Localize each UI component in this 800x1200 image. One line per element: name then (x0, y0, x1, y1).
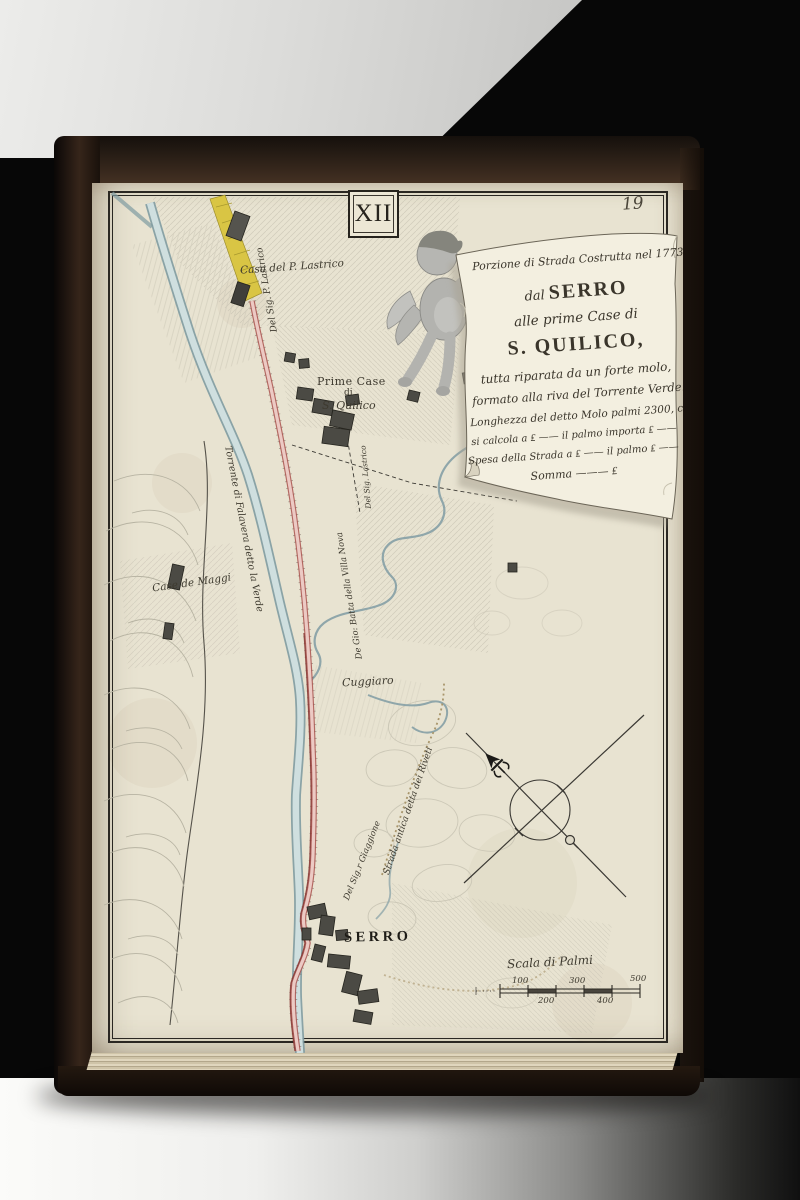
scale-label-100: 100 (512, 976, 528, 986)
page-number: 19 (621, 193, 644, 214)
book-cover-top-edge (60, 136, 700, 190)
photograph-of-atlas: XII 19 Porzione di Strada Costrutta nel … (0, 0, 800, 1200)
scale-label-500: 500 (630, 974, 646, 984)
plate-number: XII (355, 200, 393, 228)
backdrop-wall (0, 0, 600, 158)
scale-label-200: 200 (538, 996, 554, 1006)
label-prime-case-1: Prime Case (317, 375, 386, 388)
book-cover-right-edge (680, 148, 704, 1082)
book-cover-bottom-edge (58, 1066, 700, 1096)
label-serro-town: SERRO (344, 928, 412, 946)
scale-label-400: 400 (597, 996, 613, 1006)
serro-title: SERRO (548, 276, 628, 303)
label-cuggiaro: Cuggiaro (342, 674, 394, 690)
label-prime-case-2: di (344, 388, 353, 398)
map-page[interactable]: XII 19 Porzione di Strada Costrutta nel … (92, 183, 683, 1053)
circle-marker-icon (566, 836, 579, 849)
plate-number-box: XII (348, 190, 399, 238)
scale-label-300: 300 (569, 976, 585, 986)
label-prime-case-3: S. Quilico (322, 399, 376, 412)
